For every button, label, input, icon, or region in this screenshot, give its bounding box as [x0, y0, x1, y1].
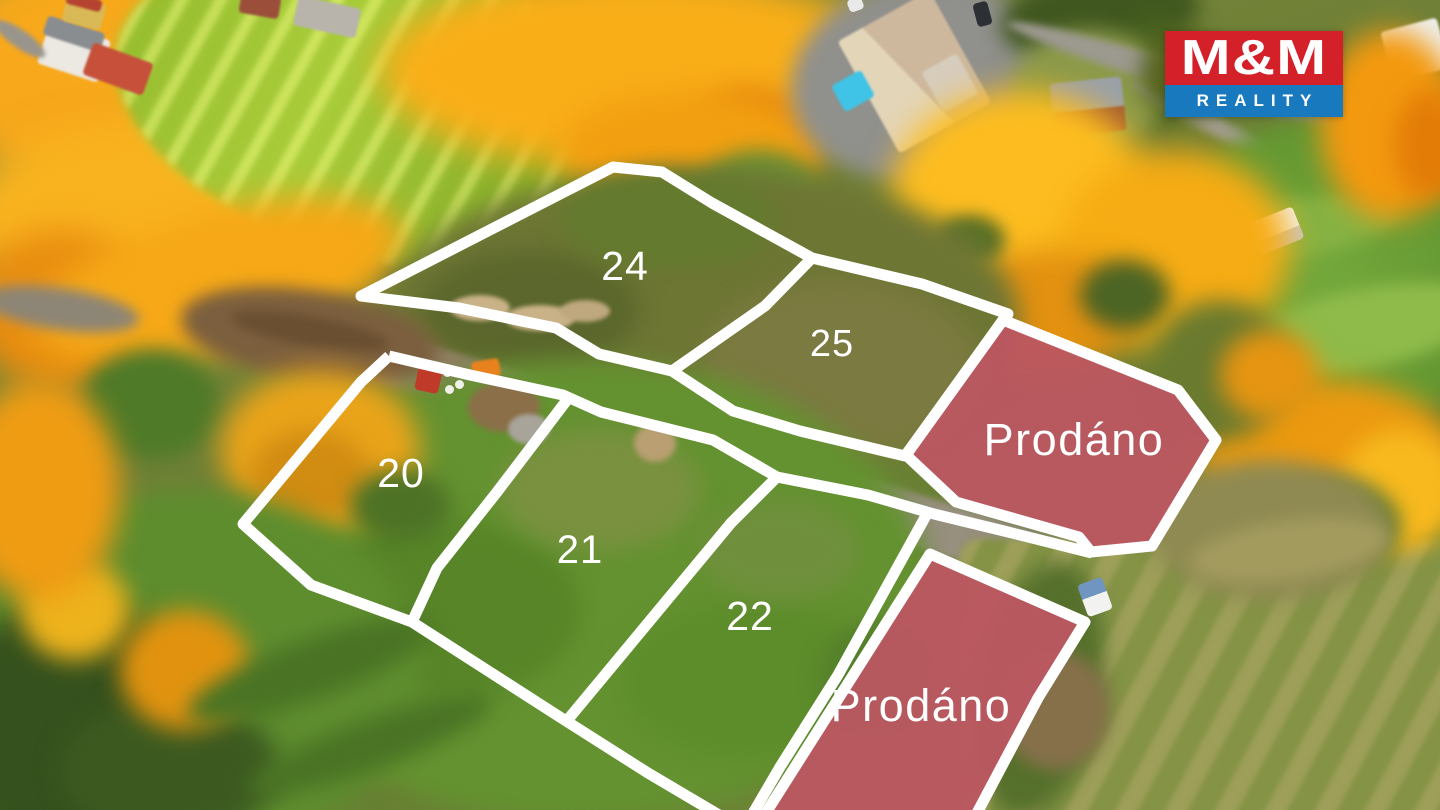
divider-20-21: [412, 396, 570, 622]
logo-mm-text: M&M: [1181, 31, 1327, 85]
logo-reality-box: REALITY: [1165, 85, 1343, 117]
sold-label-upper: Prodáno: [984, 414, 1165, 465]
listing-image: 24 25 20 21 22 Prodáno Prodáno M&M REALI…: [0, 0, 1440, 810]
mm-reality-logo: M&M REALITY: [1165, 31, 1343, 117]
plot-number-22: 22: [726, 593, 774, 639]
sold-label-lower: Prodáno: [831, 680, 1012, 731]
plot-number-21: 21: [557, 528, 604, 572]
logo-mm-box: M&M: [1165, 31, 1343, 85]
plot-block-24-25-outline: [361, 167, 1008, 456]
plot-overlay: 24 25 20 21 22 Prodáno Prodáno: [0, 0, 1440, 810]
plot-number-20: 20: [377, 450, 425, 496]
divider-24-25: [672, 258, 812, 371]
plot-number-24: 24: [601, 243, 649, 289]
plot-number-25: 25: [810, 323, 854, 365]
logo-reality-text: REALITY: [1190, 85, 1319, 117]
